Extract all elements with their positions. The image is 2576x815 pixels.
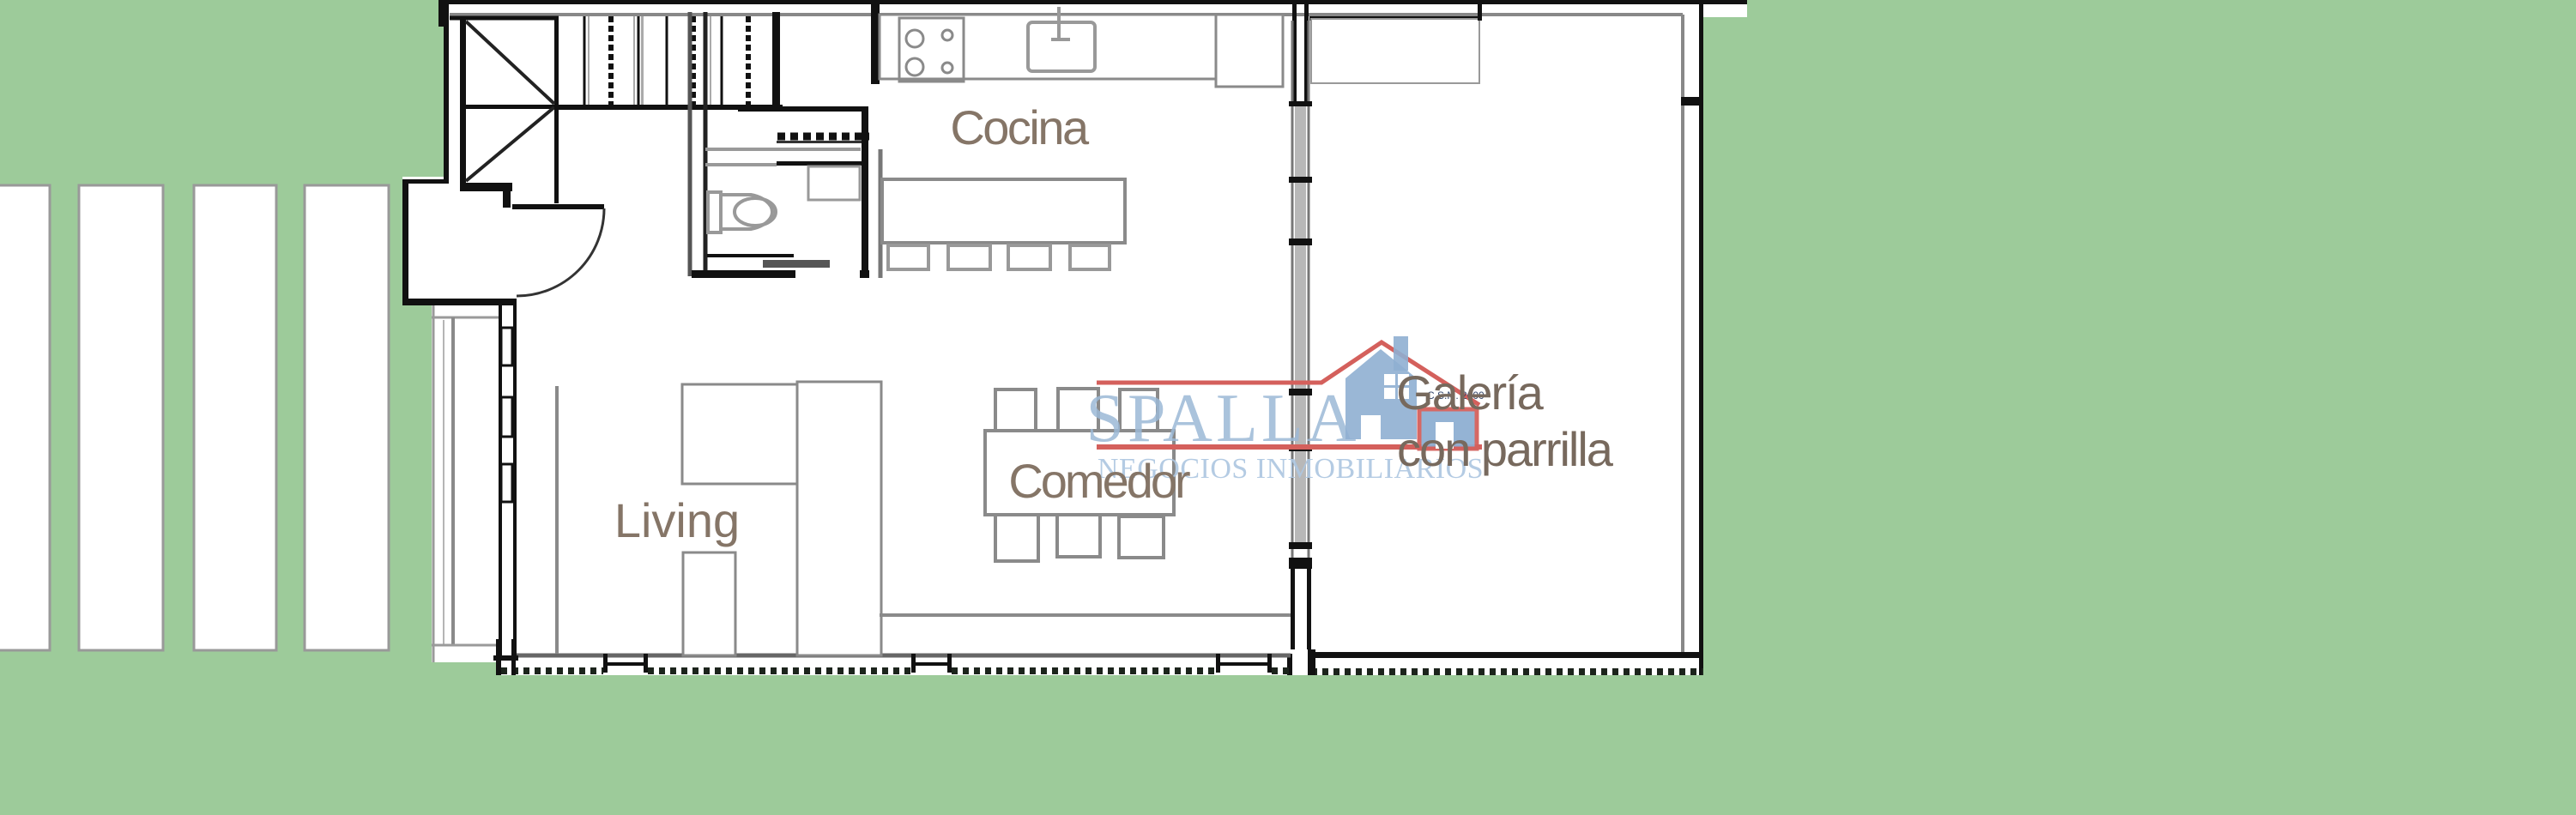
svg-text:con parrilla: con parrilla xyxy=(1397,422,1614,476)
svg-text:Cocina: Cocina xyxy=(950,100,1090,154)
svg-text:Galería: Galería xyxy=(1396,365,1544,420)
svg-text:Living: Living xyxy=(614,493,740,547)
svg-text:Comedor: Comedor xyxy=(1008,454,1190,508)
